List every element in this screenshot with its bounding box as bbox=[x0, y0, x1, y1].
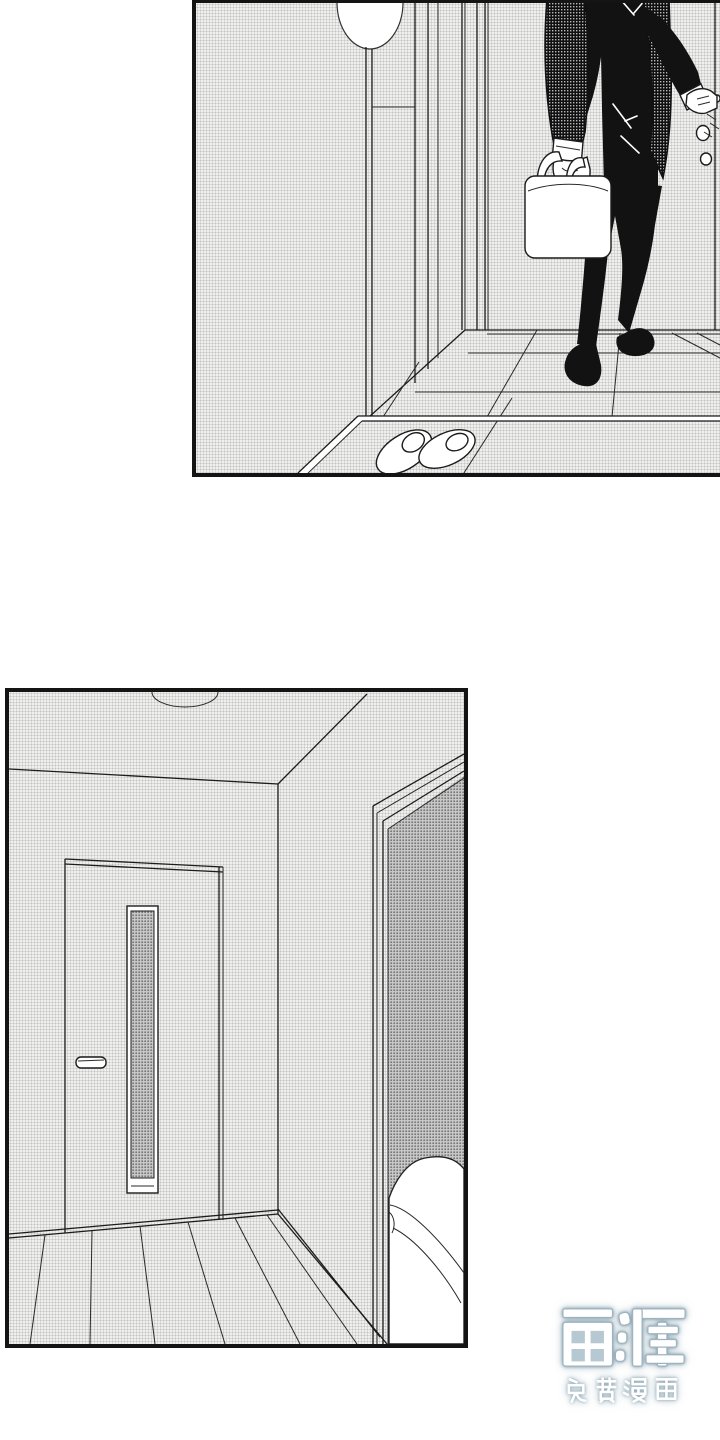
interior-door bbox=[65, 859, 223, 1233]
shoe bbox=[616, 328, 654, 356]
room-corner bbox=[9, 694, 367, 1214]
glyph-hua bbox=[563, 1309, 613, 1366]
hand-on-door bbox=[686, 89, 717, 114]
glyph-fei bbox=[598, 1378, 615, 1401]
door-lock-knob bbox=[701, 153, 712, 165]
ceiling-light bbox=[337, 3, 403, 49]
panel-entryway bbox=[192, 0, 720, 477]
handbag bbox=[525, 152, 611, 258]
glyph-ya bbox=[615, 1309, 685, 1366]
watermark bbox=[552, 1307, 712, 1404]
huaya-logo-icon bbox=[560, 1307, 688, 1370]
door-lock-knob bbox=[697, 126, 710, 141]
tweed-jacket-sleeve bbox=[545, 3, 588, 149]
genkan-step bbox=[298, 416, 720, 473]
manga-page bbox=[0, 0, 720, 1440]
huaya-tagline bbox=[564, 1376, 680, 1404]
shoe bbox=[565, 343, 602, 386]
door-window bbox=[127, 906, 158, 1193]
glyph-mian bbox=[569, 1379, 585, 1401]
ceiling-light bbox=[152, 692, 218, 707]
slippers bbox=[369, 421, 481, 473]
door-handle bbox=[76, 1057, 106, 1068]
glyph-man bbox=[624, 1379, 645, 1401]
panel-empty-room bbox=[5, 688, 468, 1348]
wood-floor bbox=[9, 1209, 387, 1344]
glyph-hua-small bbox=[657, 1379, 676, 1398]
bed bbox=[389, 1157, 464, 1344]
